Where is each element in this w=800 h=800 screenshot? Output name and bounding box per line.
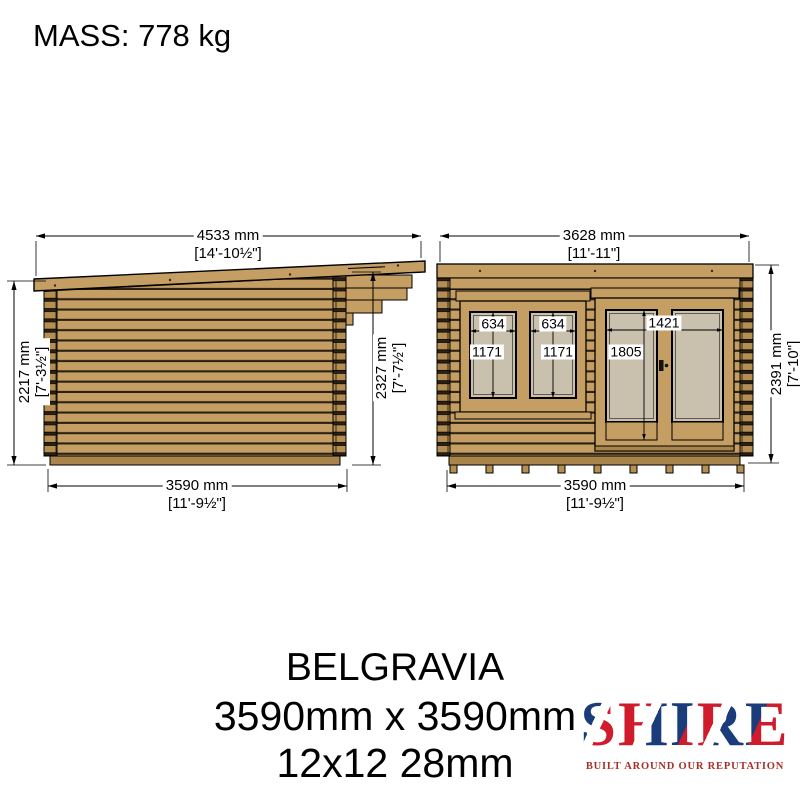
side-width-bottom-ft: [11'-9½"] — [165, 496, 229, 512]
side-height-left: 2217 mm [7'-3½"] — [16, 339, 50, 406]
side-base-strip — [50, 456, 340, 465]
product-name: BELGRAVIA — [286, 646, 504, 690]
door-width-label: 1421 — [646, 316, 681, 331]
side-wall-logs — [57, 277, 333, 457]
shire-logo-wordmark: SHIRE — [576, 688, 794, 760]
side-height-left-ft: [7'-3½"] — [33, 341, 50, 404]
front-height-right-ft: [7'-10"] — [785, 333, 800, 396]
window-pane2-width-label: 634 — [539, 317, 566, 332]
side-width-bottom-mm: 3590 mm — [163, 478, 232, 494]
front-width-top-mm: 3628 mm — [560, 228, 629, 244]
side-height-right: 2327 mm [7'-7½"] — [373, 335, 407, 402]
window-pane2-height-label: 1171 — [541, 345, 575, 360]
door-handle-icon — [659, 360, 664, 371]
door-threshold — [595, 446, 734, 451]
side-elevation — [34, 261, 425, 465]
product-size: 3590mm x 3590mm — [214, 693, 576, 740]
front-width-bottom-ft: [11'-9½"] — [563, 496, 627, 512]
front-height-right: 2391 mm [7'-10"] — [768, 331, 800, 398]
product-spec: 12x12 28mm — [276, 740, 513, 787]
front-corner-log-ends-right — [740, 278, 753, 456]
door-header-beam — [591, 288, 739, 298]
side-width-top-mm: 4533 mm — [194, 228, 263, 244]
side-roof-steps — [346, 275, 412, 325]
window-pane1-height-label: 1171 — [470, 345, 504, 360]
front-roof-trim — [449, 278, 740, 289]
shire-logo: SHIRE BUILT AROUND OUR REPUTATION — [576, 688, 794, 788]
side-height-left-mm: 2217 mm — [16, 341, 33, 404]
side-height-right-ft: [7'-7½"] — [390, 337, 407, 400]
window-sill — [455, 412, 591, 419]
front-height-right-mm: 2391 mm — [768, 333, 785, 396]
side-corner-log-ends-right — [333, 276, 346, 456]
door-height-label: 1805 — [608, 345, 643, 360]
front-width-bottom-mm: 3590 mm — [561, 478, 630, 494]
front-elevation — [437, 264, 753, 473]
window-pane1-width-label: 634 — [479, 317, 506, 332]
front-base-strip — [449, 456, 740, 465]
window-header-beam — [456, 291, 590, 301]
side-height-right-mm: 2327 mm — [373, 337, 390, 400]
front-width-top-ft: [11'-11"] — [565, 246, 624, 262]
mass-label: MASS: 778 kg — [33, 18, 231, 54]
side-width-top-ft: [14'-10½"] — [191, 246, 264, 262]
double-window — [455, 301, 591, 419]
shire-logo-tagline: BUILT AROUND OUR REPUTATION — [576, 761, 794, 772]
floor-bearers — [450, 465, 744, 473]
front-corner-log-ends-left — [437, 278, 450, 456]
